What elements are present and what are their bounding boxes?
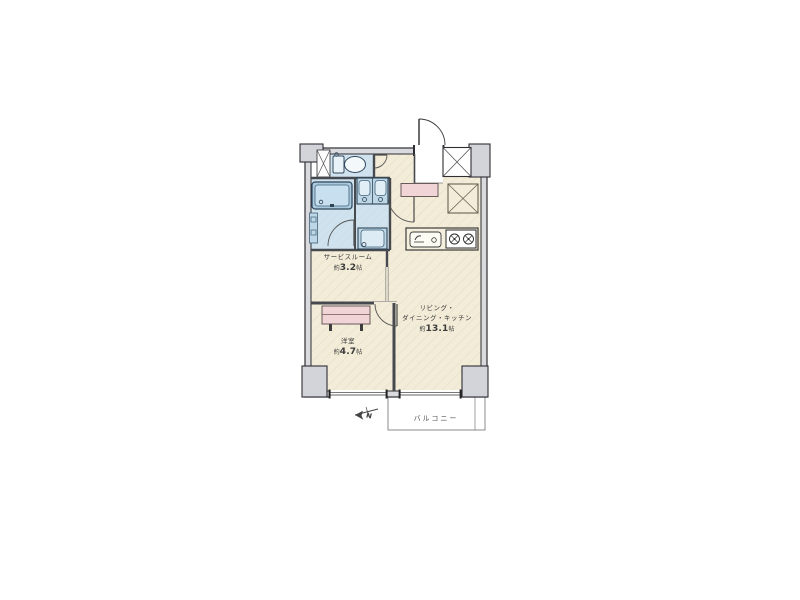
bedroom-area: 約4.7帖 [334,346,363,360]
bath-shelf [310,213,318,243]
ldk-name-line1: リビング・ [402,303,472,313]
floorplan-drawing [0,0,800,600]
ldk-label: リビング・ ダイニング・キッチン 約13.1帖 [402,303,472,337]
entrance-opening [413,145,445,156]
kitchen-sink-icon [410,232,441,247]
balcony-label: バルコニー [414,414,459,425]
washbasin-icon [357,178,388,204]
service-room-area: 約3.2帖 [324,262,373,276]
entrance-floor [414,154,443,183]
pipe-space [448,184,478,213]
stove-icon [446,230,476,248]
duct-space [317,150,330,177]
bedroom-name: 洋室 [334,336,363,346]
service-room-name: サービスルーム [324,252,373,262]
floorplan-page: サービスルーム 約3.2帖 洋室 約4.7帖 リビング・ ダイニング・キッチン … [0,0,800,600]
bedroom-label: 洋室 約4.7帖 [334,336,363,360]
service-room-label: サービスルーム 約3.2帖 [324,252,373,276]
bedroom-window [329,390,388,399]
entrance-door [419,119,445,145]
ldk-area: 約13.1帖 [402,323,472,337]
shoe-cabinet [401,184,438,197]
meter-box [443,148,471,177]
ldk-name-line2: ダイニング・キッチン [402,313,472,323]
ldk-window [399,390,462,399]
washing-machine-icon [358,228,387,249]
bathtub-icon [312,182,352,209]
